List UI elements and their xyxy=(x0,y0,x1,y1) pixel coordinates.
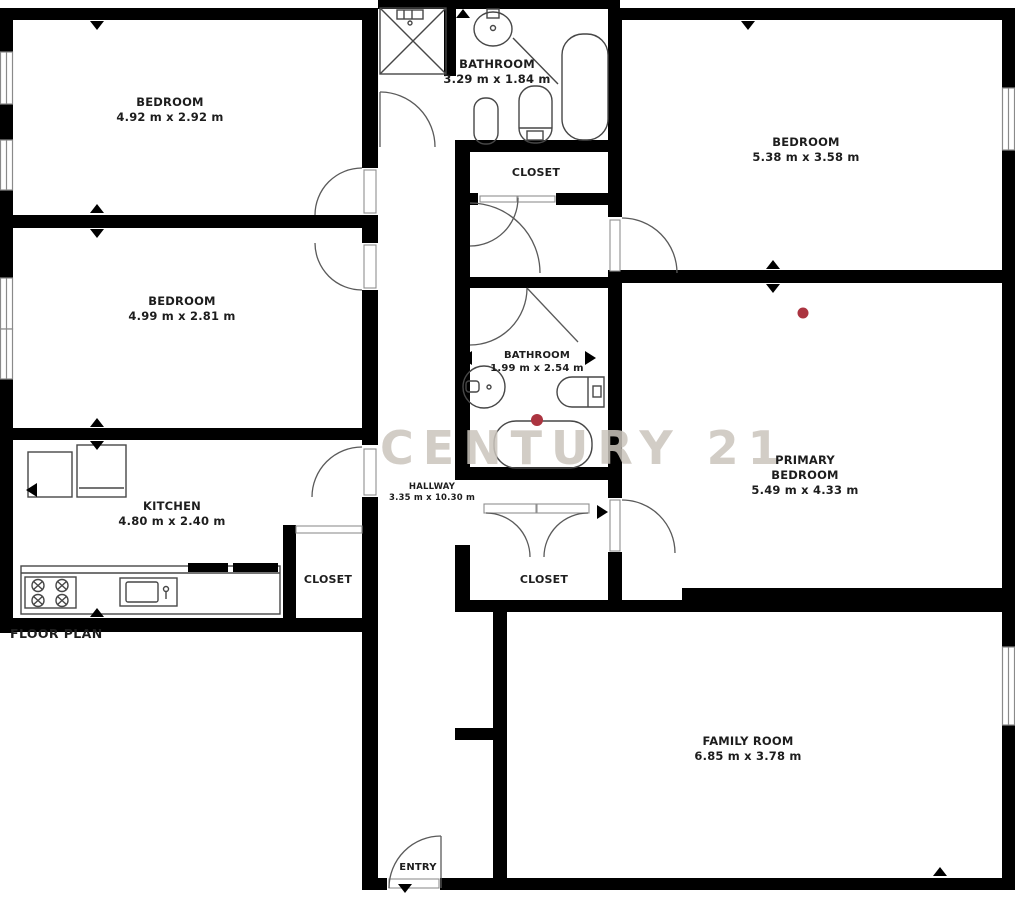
kitchen-sink-icon xyxy=(120,578,177,606)
label-bathroom-mid: BATHROOM 1.99 m x 2.54 m xyxy=(490,349,584,375)
sink-icon xyxy=(474,9,512,46)
room-name: KITCHEN xyxy=(118,499,225,514)
room-name: BATHROOM xyxy=(443,57,550,72)
floor-plan: CENTURY 21 BEDROOM 4.92 m x 2.92 m BATHR… xyxy=(0,0,1015,901)
counter-detail xyxy=(188,563,228,572)
century21-watermark: CENTURY 21 xyxy=(380,421,789,475)
label-closet-mid: CLOSET xyxy=(520,573,568,587)
label-bedroom-top-left: BEDROOM 4.92 m x 2.92 m xyxy=(116,95,223,125)
label-bedroom-top-right: BEDROOM 5.38 m x 3.58 m xyxy=(752,135,859,165)
room-name: BATHROOM xyxy=(490,349,584,362)
bathtub-icon xyxy=(562,34,608,140)
label-closet-kitchen: CLOSET xyxy=(304,573,352,587)
bidet-icon xyxy=(519,86,552,143)
label-closet-top: CLOSET xyxy=(512,166,560,180)
stove-icon xyxy=(25,577,76,608)
room-dims: 4.80 m x 2.40 m xyxy=(118,514,225,529)
red-dot-primary-bedroom xyxy=(798,308,809,319)
room-dims: 3.35 m x 10.30 m xyxy=(389,493,475,504)
room-name: BEDROOM xyxy=(751,468,858,483)
plan-title: FLOOR PLAN xyxy=(10,626,103,641)
room-dims: 1.99 m x 2.54 m xyxy=(490,362,584,375)
room-dims: 4.92 m x 2.92 m xyxy=(116,110,223,125)
counter-detail xyxy=(233,563,278,572)
appliance-icon xyxy=(77,445,126,497)
label-bathroom-top: BATHROOM 3.29 m x 1.84 m xyxy=(443,57,550,87)
room-name: FAMILY ROOM xyxy=(694,734,801,749)
room-dims: 4.99 m x 2.81 m xyxy=(128,309,235,324)
label-bedroom-mid-left: BEDROOM 4.99 m x 2.81 m xyxy=(128,294,235,324)
room-name: BEDROOM xyxy=(116,95,223,110)
room-dims: 3.29 m x 1.84 m xyxy=(443,72,550,87)
room-dims: 5.38 m x 3.58 m xyxy=(752,150,859,165)
room-name: BEDROOM xyxy=(128,294,235,309)
label-entry: ENTRY xyxy=(399,861,436,874)
label-kitchen: KITCHEN 4.80 m x 2.40 m xyxy=(118,499,225,529)
room-name: CLOSET xyxy=(512,166,560,180)
kitchen-fixtures xyxy=(21,445,280,614)
room-name: PRIMARY xyxy=(751,453,858,468)
room-name: HALLWAY xyxy=(389,482,475,493)
label-hallway: HALLWAY 3.35 m x 10.30 m xyxy=(389,482,475,504)
room-dims: 5.49 m x 4.33 m xyxy=(751,483,858,498)
room-name: CLOSET xyxy=(520,573,568,587)
shower-icon xyxy=(380,8,446,74)
room-name: CLOSET xyxy=(304,573,352,587)
toilet-icon xyxy=(474,98,498,144)
room-name: ENTRY xyxy=(399,861,436,874)
room-name: BEDROOM xyxy=(752,135,859,150)
label-family-room: FAMILY ROOM 6.85 m x 3.78 m xyxy=(694,734,801,764)
tub-horizontal-icon xyxy=(557,377,604,407)
label-primary-bedroom: PRIMARY BEDROOM 5.49 m x 4.33 m xyxy=(751,453,858,498)
room-dims: 6.85 m x 3.78 m xyxy=(694,749,801,764)
